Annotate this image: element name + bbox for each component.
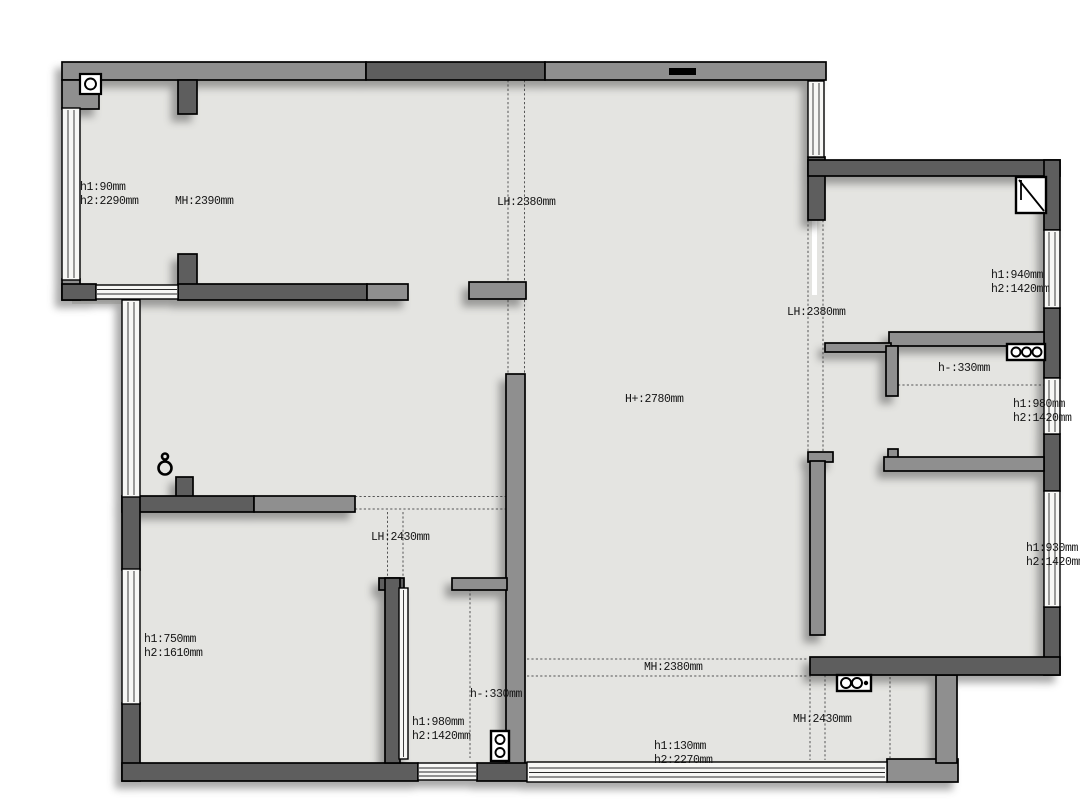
window-tlroom-bottom [96,285,178,299]
beam-mark [669,68,696,75]
window-living-left [122,300,140,497]
wall-bath-top-stub [452,578,507,590]
wall-stub-top [178,80,197,114]
meter-dot [864,681,868,685]
wall-left-lower-a [122,496,140,570]
meter-unit-icon [837,675,871,691]
label-bath-counter-h: h-:330mm [470,688,523,701]
window-topleft [62,108,80,280]
wall-central-vertical [506,374,525,766]
floor-plan-drawing: h1:90mm h2:2290mm MH:2390mm LH:2380mm LH… [0,0,1080,810]
wall-bottom-b [477,763,528,781]
wall-right-c [1044,434,1060,491]
cooktop-two-burner-icon [491,731,509,761]
wall-bottom-a [122,763,418,781]
door-threshold-bath [418,763,477,780]
corner-unit-icon [1016,177,1046,213]
label-balcony-mh: MH:2430mm [793,713,852,726]
wall-kitchen-top [808,160,1060,176]
column-pipe-icon [80,74,101,94]
floor-plan: h1:90mm h2:2290mm MH:2390mm LH:2380mm LH… [0,0,1080,810]
wall-tlroom-bottom-b [178,284,367,300]
label-kitchen-window2-h1: h1:980mm [1013,398,1066,411]
label-tlroom-mh: MH:2390mm [175,195,234,208]
label-tlroom-h1: h1:90mm [80,181,126,194]
wall-stub-bottom [178,254,197,286]
label-kitchen-window2-h2: h2:1420mm [1013,412,1072,425]
wall-tlroom-bottom-a [62,284,96,300]
wall-tlroom-bottom-c [367,284,408,300]
window-kitchen-right [1044,230,1060,308]
label-kitchen-window-h2: h2:1420mm [991,283,1050,296]
wall-hall-stub [176,477,193,498]
label-balconydoor-mh: MH:2380mm [644,661,703,674]
label-kitchen-window-h1: h1:940mm [991,269,1044,282]
wall-brroom-left [810,461,825,635]
label-bath-window-h1: h1:980mm [412,716,465,729]
wall-top-mid [366,62,545,80]
label-right-opening-lh: LH:2380mm [787,306,846,319]
label-top-opening-lh: LH:2380mm [497,196,556,209]
wall-right-b [1044,308,1060,378]
label-hall-lh: LH:2430mm [371,531,430,544]
label-living-ceiling-h: H+:2780mm [625,393,684,406]
label-brroom-window-h2: h2:1420mm [1026,556,1080,569]
window-kitchen-entry [808,81,824,157]
window-bedroom-left [122,569,140,704]
wall-brroom-bottom [810,657,1060,675]
label-blroom-h2: h2:1610mm [144,647,203,660]
wall-top-left [62,62,366,80]
label-balconydoor-h2: h2:2270mm [654,754,713,767]
label-tlroom-h2: h2:2290mm [80,195,139,208]
wall-bath-left [385,578,400,763]
column-box [80,74,101,94]
label-balconydoor-h1: h1:130mm [654,740,707,753]
wall-hall-b [254,496,355,512]
cooktop-three-burner-icon [1007,344,1045,360]
label-brroom-window-h1: h1:930mm [1026,542,1079,555]
wall-stub-mid [469,282,526,299]
wall-mid-right [884,457,1044,471]
label-bath-window-h2: h2:1420mm [412,730,471,743]
label-blroom-h1: h1:750mm [144,633,197,646]
cooktop3-box [1007,344,1045,360]
wall-balcony-right [936,675,957,763]
wall-hall-a [122,496,254,512]
wall-kitchen-divider-drop [886,346,898,396]
wall-kitchen-divider-thin [825,343,891,352]
label-kitchen-counter-h: h-:330mm [938,362,991,375]
